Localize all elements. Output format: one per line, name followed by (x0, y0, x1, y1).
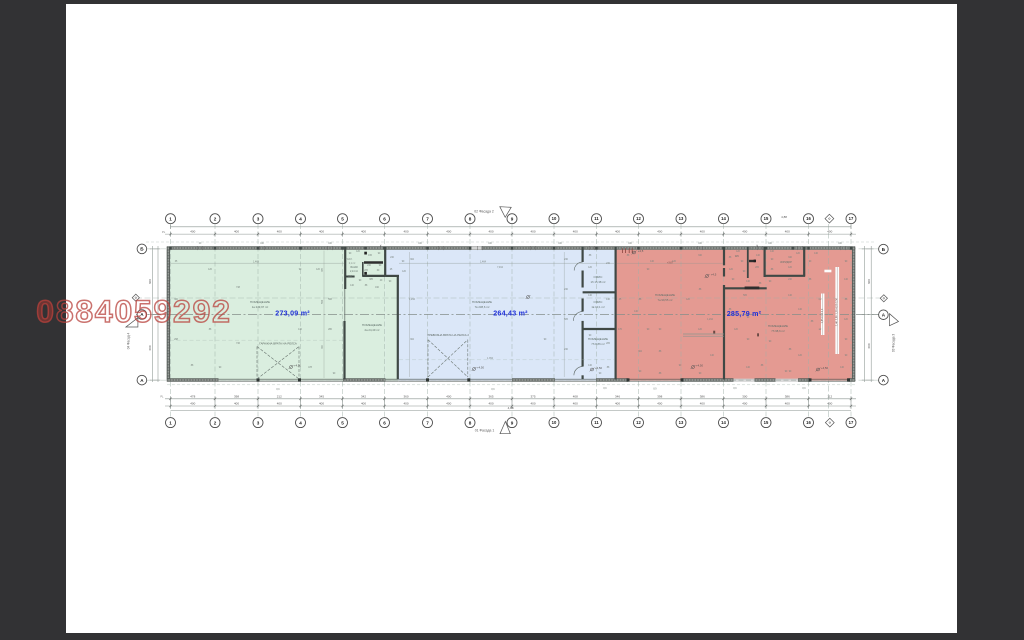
svg-text:1,294: 1,294 (707, 319, 713, 321)
svg-text:273,09 m²: 273,09 m² (275, 310, 310, 318)
svg-text:4,88: 4,88 (508, 406, 514, 410)
svg-text:PL: PL (160, 395, 164, 399)
svg-text:ПОМЕЩЕНИЕ: ПОМЕЩЕНИЕ (472, 300, 492, 304)
svg-text:10: 10 (552, 216, 557, 221)
svg-text:БАНЯ: БАНЯ (350, 265, 357, 269)
svg-text:400: 400 (530, 402, 535, 406)
svg-text:400: 400 (742, 402, 747, 406)
svg-text:17: 17 (849, 420, 854, 425)
svg-text:12: 12 (636, 420, 641, 425)
svg-text:400: 400 (446, 230, 451, 234)
svg-text:7б 8,86 m²: 7б 8,86 m² (591, 342, 604, 346)
svg-text:+4,5: +4,5 (638, 249, 644, 253)
svg-text:6: 6 (383, 420, 386, 425)
svg-text:400: 400 (446, 402, 451, 406)
svg-text:400: 400 (785, 402, 790, 406)
svg-text:8: 8 (469, 216, 472, 221)
svg-text:12: 12 (636, 216, 641, 221)
svg-text:400: 400 (573, 230, 578, 234)
svg-text:400: 400 (234, 402, 239, 406)
svg-text:WC: WC (735, 254, 739, 258)
svg-text:ОФИС: ОФИС (594, 275, 604, 279)
svg-text:400: 400 (657, 230, 662, 234)
svg-text:7: 7 (426, 216, 429, 221)
svg-text:16: 16 (806, 420, 811, 425)
svg-text:5: 5 (341, 420, 344, 425)
svg-text:1: 1 (169, 216, 172, 221)
svg-text:2,1 m²: 2,1 m² (349, 262, 356, 265)
svg-text:14: 14 (721, 216, 726, 221)
svg-text:1,464: 1,464 (480, 260, 487, 263)
svg-text:264,43 m²: 264,43 m² (493, 310, 528, 318)
svg-text:15: 15 (764, 216, 769, 221)
svg-text:9: 9 (511, 420, 514, 425)
svg-text:1в 10,1 m²: 1в 10,1 m² (591, 305, 604, 309)
svg-text:400: 400 (700, 230, 705, 234)
svg-text:13: 13 (679, 420, 684, 425)
svg-text:346: 346 (615, 394, 620, 398)
svg-text:9: 9 (511, 216, 514, 221)
svg-text:400: 400 (615, 402, 620, 406)
svg-text:7,464: 7,464 (497, 267, 503, 269)
svg-text:360: 360 (403, 394, 408, 398)
svg-text:ОФИС: ОФИС (594, 300, 604, 304)
svg-text:1: 1 (169, 420, 172, 425)
svg-text:16: 16 (806, 216, 811, 221)
svg-text:1б 15,38 m²: 1б 15,38 m² (591, 280, 606, 284)
svg-text:2: 2 (214, 216, 217, 221)
svg-text:2а 24,49 m²: 2а 24,49 m² (365, 328, 380, 332)
svg-text:400: 400 (190, 402, 195, 406)
svg-text:400: 400 (742, 230, 747, 234)
svg-text:5: 5 (341, 216, 344, 221)
svg-text:15: 15 (764, 420, 769, 425)
svg-text:400: 400 (190, 230, 195, 234)
svg-text:400: 400 (361, 402, 366, 406)
svg-text:11: 11 (594, 420, 599, 425)
svg-text:4,88: 4,88 (781, 215, 787, 219)
svg-text:345: 345 (319, 394, 324, 398)
svg-text:17: 17 (849, 216, 854, 221)
svg-text:400: 400 (277, 402, 282, 406)
svg-text:ПРЕВОЗНА ВРАТА НА РЕЛСА 2: ПРЕВОЗНА ВРАТА НА РЕЛСА 2 (427, 333, 469, 337)
svg-text:1,468: 1,468 (253, 260, 260, 263)
svg-text:400: 400 (403, 402, 408, 406)
svg-text:+4,50: +4,50 (821, 366, 829, 370)
svg-text:400: 400 (488, 230, 493, 234)
svg-text:600: 600 (867, 343, 871, 348)
svg-text:7а 99,55 m²: 7а 99,55 m² (658, 298, 673, 302)
svg-text:1а 249,97 m²: 1а 249,97 m² (252, 305, 269, 309)
svg-text:400: 400 (657, 402, 662, 406)
svg-text:ПОМЕЩЕНИЕ: ПОМЕЩЕНИЕ (655, 293, 675, 297)
svg-text:6: 6 (383, 216, 386, 221)
svg-text:3: 3 (257, 420, 260, 425)
svg-text:7б 98,6 m²: 7б 98,6 m² (771, 329, 784, 333)
svg-text:112: 112 (827, 394, 832, 398)
svg-text:342: 342 (361, 394, 366, 398)
svg-text:2: 2 (214, 420, 217, 425)
svg-text:400: 400 (277, 230, 282, 234)
svg-text:400: 400 (827, 402, 832, 406)
svg-text:7: 7 (426, 420, 429, 425)
svg-text:+4,50: +4,50 (294, 364, 302, 368)
svg-text:04 Фасад 4: 04 Фасад 4 (127, 333, 131, 350)
svg-text:398: 398 (234, 394, 239, 398)
svg-text:7в 238,6 m²: 7в 238,6 m² (475, 305, 490, 309)
svg-text:300: 300 (742, 394, 747, 398)
svg-text:212: 212 (277, 394, 282, 398)
svg-text:+4,50: +4,50 (477, 366, 485, 370)
svg-text:PL: PL (162, 230, 166, 234)
svg-text:КОРИДОР: КОРИДОР (780, 261, 792, 264)
svg-text:1,354: 1,354 (487, 357, 494, 360)
svg-text:14: 14 (721, 420, 726, 425)
svg-text:4: 4 (299, 216, 302, 221)
svg-text:01 Фасада 1: 01 Фасада 1 (475, 428, 495, 432)
svg-text:4: 4 (299, 420, 302, 425)
svg-text:0884059292: 0884059292 (36, 293, 231, 329)
svg-text:1,294: 1,294 (409, 299, 415, 301)
svg-text:10: 10 (552, 420, 557, 425)
svg-text:400: 400 (827, 230, 832, 234)
svg-text:1,40 2,85 1,20 4,50 2,30: 1,40 2,85 1,20 4,50 2,30 (835, 297, 839, 326)
svg-text:386: 386 (700, 394, 705, 398)
svg-text:∨: ∨ (756, 244, 758, 248)
svg-text:ПОМЕЩЕНИЕ: ПОМЕЩЕНИЕ (362, 323, 382, 327)
svg-text:∨: ∨ (379, 244, 381, 248)
svg-text:400: 400 (573, 402, 578, 406)
svg-text:02 Фасада 2: 02 Фасада 2 (474, 209, 494, 213)
svg-text:398: 398 (657, 394, 662, 398)
svg-text:ТОАЛ.: ТОАЛ. (346, 258, 353, 261)
svg-text:ПОМЕЩЕНИЕ: ПОМЕЩЕНИЕ (250, 300, 270, 304)
svg-text:408: 408 (573, 394, 578, 398)
svg-text:ПОМЕЩЕНИЕ: ПОМЕЩЕНИЕ (588, 337, 608, 341)
svg-text:400: 400 (319, 402, 324, 406)
svg-text:03 Фасада 3: 03 Фасада 3 (892, 334, 896, 353)
svg-text:400: 400 (319, 230, 324, 234)
svg-text:2,14 m²: 2,14 m² (350, 270, 358, 273)
svg-text:+4,5: +4,5 (711, 273, 717, 277)
svg-text:400: 400 (234, 230, 239, 234)
svg-text:3: 3 (257, 216, 260, 221)
svg-text:400: 400 (488, 402, 493, 406)
svg-text:ПОМЕЩЕНИЕ: ПОМЕЩЕНИЕ (768, 324, 788, 328)
svg-text:+4,50: +4,50 (595, 366, 603, 370)
svg-text:400: 400 (530, 230, 535, 234)
svg-text:375: 375 (530, 394, 535, 398)
svg-text:400: 400 (361, 230, 366, 234)
svg-text:11: 11 (594, 216, 599, 221)
svg-text:13: 13 (679, 216, 684, 221)
svg-text:400: 400 (700, 402, 705, 406)
svg-text:+4,50: +4,50 (696, 364, 704, 368)
svg-text:400: 400 (403, 230, 408, 234)
svg-text:600: 600 (867, 279, 871, 284)
svg-text:400: 400 (446, 394, 451, 398)
svg-text:600: 600 (148, 279, 152, 284)
svg-text:386: 386 (785, 394, 790, 398)
svg-text:8: 8 (469, 420, 472, 425)
svg-text:600: 600 (148, 345, 152, 350)
svg-text:285,79 m²: 285,79 m² (727, 310, 762, 318)
svg-text:400: 400 (615, 230, 620, 234)
svg-text:400: 400 (785, 230, 790, 234)
svg-text:ГАРАЖНА ВРАТА НА РЕЛСА: ГАРАЖНА ВРАТА НА РЕЛСА (259, 342, 297, 346)
svg-text:365: 365 (488, 394, 493, 398)
svg-text:478: 478 (190, 394, 195, 398)
